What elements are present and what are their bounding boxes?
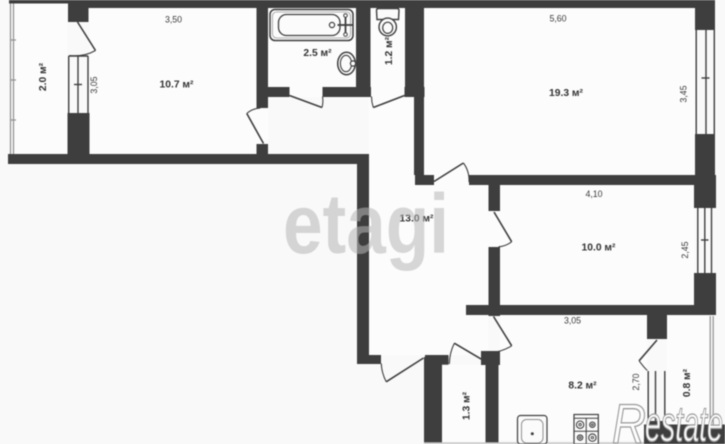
svg-text:etagi: etagi [283,177,449,271]
svg-text:3,50: 3,50 [165,15,182,25]
svg-text:5,60: 5,60 [549,14,566,24]
svg-text:3,05: 3,05 [89,76,99,93]
svg-text:1.2 м²: 1.2 м² [384,36,395,65]
svg-text:2.5 м²: 2.5 м² [303,48,332,59]
svg-text:1.3 м²: 1.3 м² [462,391,473,420]
svg-text:19.3 м²: 19.3 м² [549,88,584,99]
svg-text:3,45: 3,45 [679,85,689,102]
svg-text:estate: estate [645,396,723,444]
svg-text:8.2 м²: 8.2 м² [568,381,597,392]
svg-text:R: R [612,392,646,444]
svg-text:2,70: 2,70 [631,373,641,390]
svg-text:2.0 м²: 2.0 м² [38,62,49,91]
svg-text:0.8 м²: 0.8 м² [682,368,693,397]
svg-text:3,05: 3,05 [564,316,581,326]
svg-text:2,45: 2,45 [680,241,690,258]
svg-text:4,10: 4,10 [585,189,602,199]
svg-text:10.0 м²: 10.0 м² [582,243,617,254]
svg-text:10.7 м²: 10.7 м² [160,80,195,91]
